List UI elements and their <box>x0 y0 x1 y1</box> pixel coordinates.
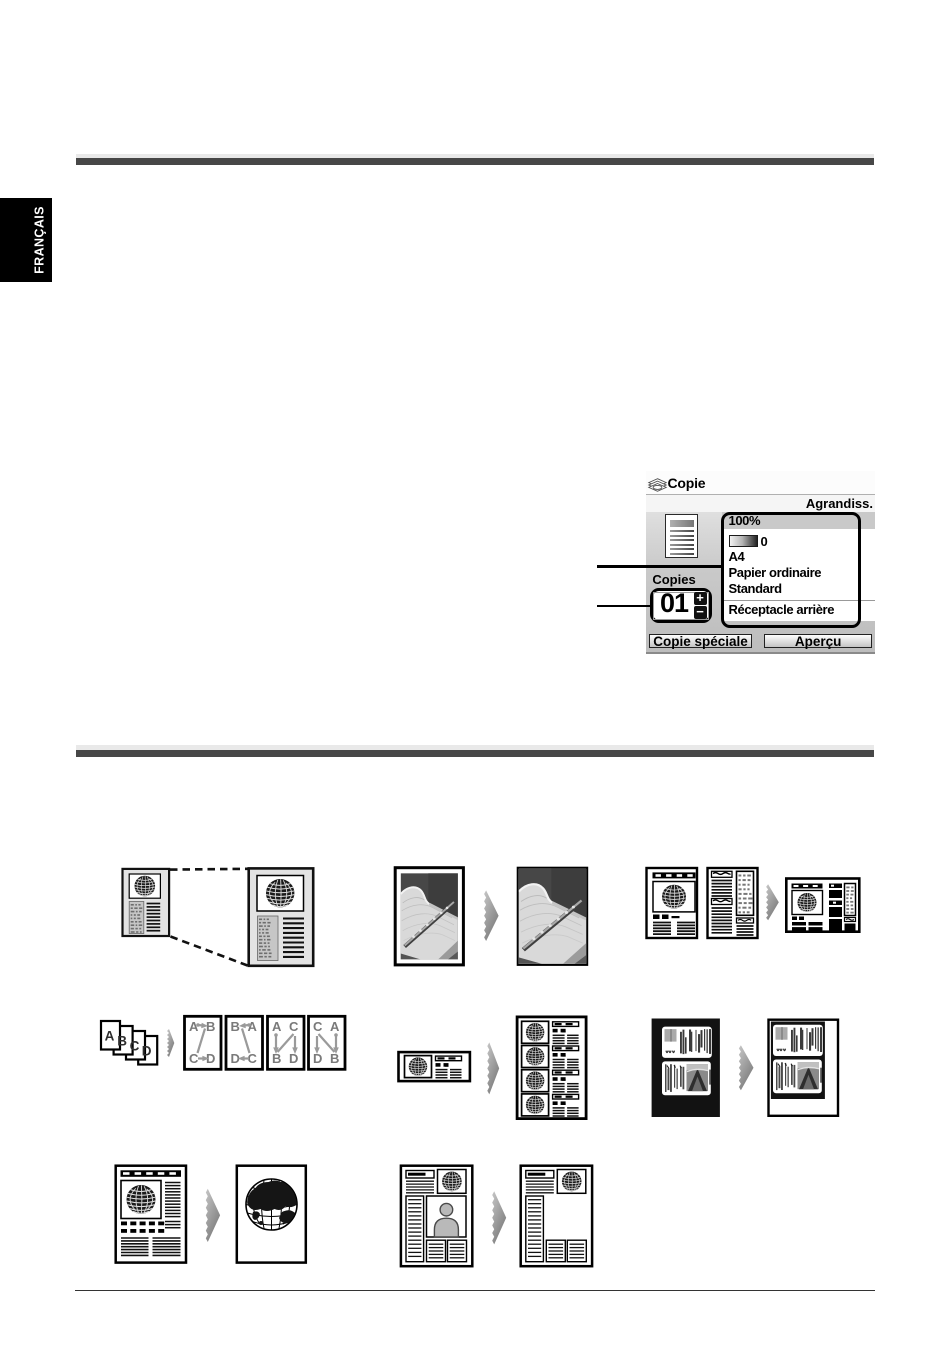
svg-text:D: D <box>289 1051 298 1066</box>
svg-text:B: B <box>117 1034 127 1049</box>
svg-text:B: B <box>272 1051 281 1066</box>
svg-text:B: B <box>231 1019 240 1034</box>
svg-text:C: C <box>289 1019 299 1034</box>
svg-text:A: A <box>105 1029 115 1044</box>
svg-text:A: A <box>272 1019 282 1034</box>
svg-text:C: C <box>130 1039 140 1054</box>
svg-text:D: D <box>313 1051 322 1066</box>
svg-text:C: C <box>189 1051 199 1066</box>
svg-text:B: B <box>206 1019 215 1034</box>
svg-text:D: D <box>142 1044 152 1059</box>
svg-text:B: B <box>330 1051 339 1066</box>
svg-text:A: A <box>330 1019 340 1034</box>
svg-text:C: C <box>313 1019 323 1034</box>
